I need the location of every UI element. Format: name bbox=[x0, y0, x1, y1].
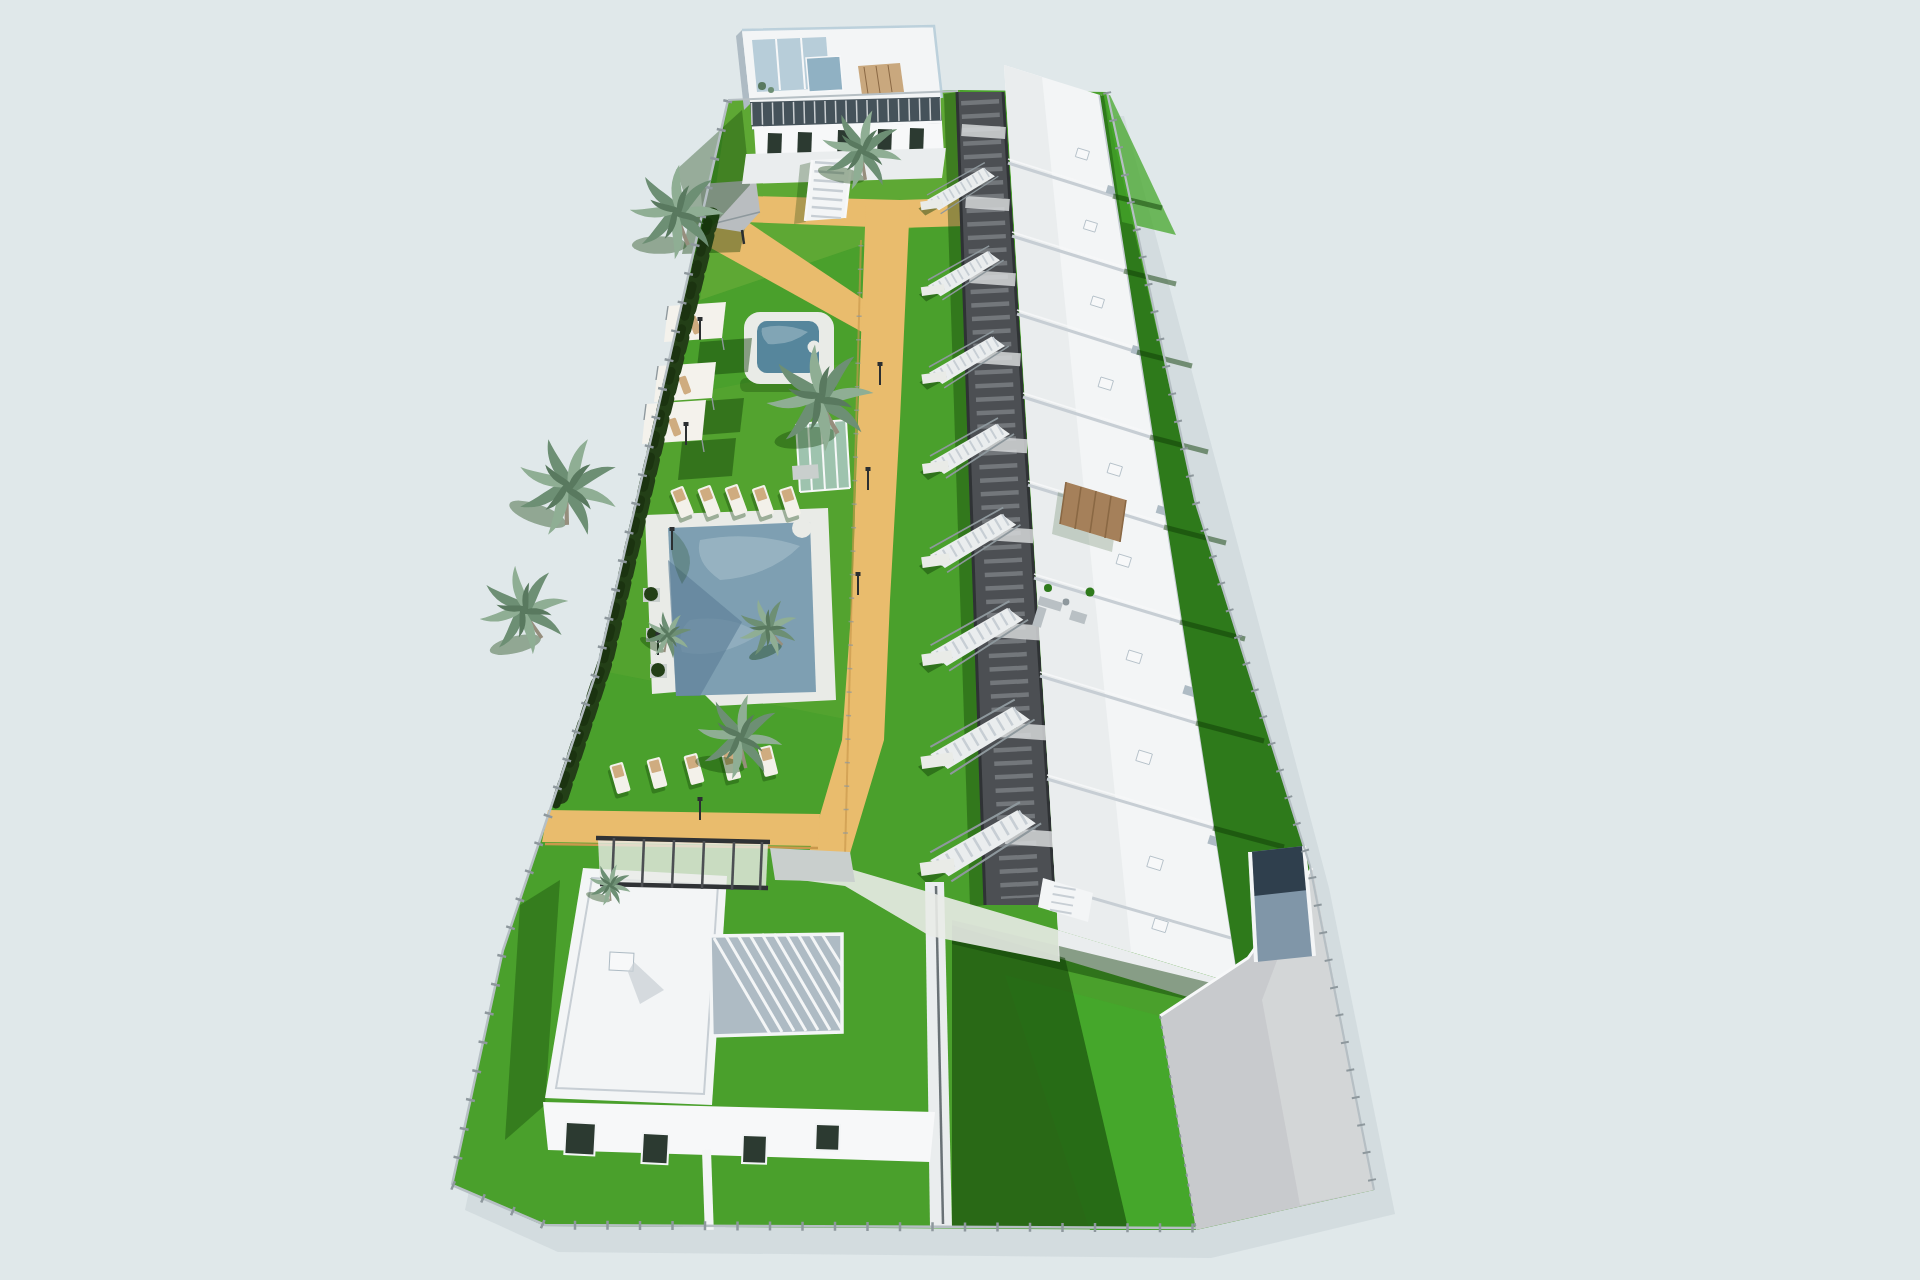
pool-equipment-pad bbox=[792, 464, 819, 480]
slatted-roof-pergola bbox=[710, 934, 842, 1036]
roof-wood-deck bbox=[858, 63, 904, 95]
garage-ramp-deep bbox=[1250, 846, 1308, 896]
roof-planter bbox=[758, 82, 766, 90]
roof-planter bbox=[768, 87, 774, 93]
render-canvas bbox=[0, 0, 1920, 1280]
charcoal-patio-pergola bbox=[596, 838, 770, 890]
villa-entry-path bbox=[770, 848, 855, 882]
aerial-render bbox=[0, 0, 1920, 1280]
roof-stair-glasshouse bbox=[806, 56, 843, 92]
pool-roman-steps bbox=[792, 518, 812, 538]
